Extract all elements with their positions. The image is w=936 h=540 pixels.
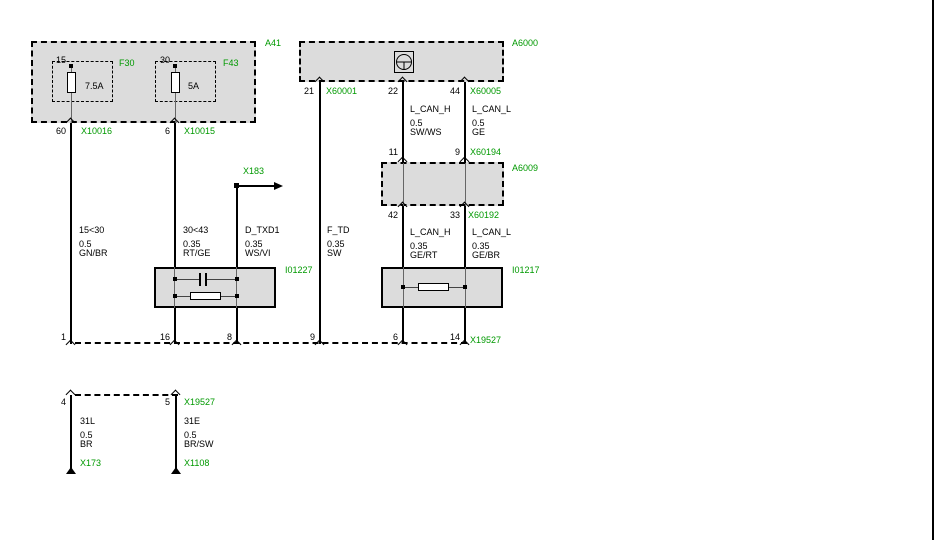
wire-name: F_TD xyxy=(327,226,350,235)
wire-label-kl30: 30<43 0.35 RT/GE xyxy=(183,226,210,258)
fuse-label-f43[interactable]: F43 xyxy=(223,58,239,68)
capacitor-icon xyxy=(199,273,201,286)
connector-label-x60192[interactable]: X60192 xyxy=(468,210,499,220)
connector-pin-6: 6 xyxy=(374,332,398,342)
component-label-i01227[interactable]: I01227 xyxy=(285,265,313,275)
wire-thin-through xyxy=(465,162,466,206)
wire-label-lcanl-lower: L_CAN_L 0.35 GE/BR xyxy=(472,228,511,260)
junction-dot xyxy=(463,285,467,289)
connector-pin-6: 6 xyxy=(146,126,170,136)
connector-pin-33: 33 xyxy=(436,210,460,220)
connector-label-x10015[interactable]: X10015 xyxy=(184,126,215,136)
wire-thin-through xyxy=(236,267,237,308)
connector-line-x19527 xyxy=(75,342,467,344)
component-label-a41[interactable]: A41 xyxy=(265,38,281,48)
wire-kl31e xyxy=(175,395,177,469)
branch-arrow-line xyxy=(238,185,275,187)
wire-color: RT/GE xyxy=(183,249,210,258)
fuse-rating-f43: 5A xyxy=(188,81,199,91)
wire-name: D_TXD1 xyxy=(245,226,280,235)
wire-kl15 xyxy=(70,123,72,344)
connector-pin-42: 42 xyxy=(374,210,398,220)
wire-color: GE/RT xyxy=(410,251,451,260)
ground-label-x173[interactable]: X173 xyxy=(80,458,101,468)
wire-color: GE/BR xyxy=(472,251,511,260)
wiring-diagram-canvas: A41 F30 15 7.5A F43 30 5A 60 X10016 6 X1… xyxy=(0,0,936,540)
component-label-a6009[interactable]: A6009 xyxy=(512,163,538,173)
capacitor-lead xyxy=(207,279,237,280)
connector-label-x19527-main[interactable]: X19527 xyxy=(470,335,501,345)
connector-pin-44: 44 xyxy=(436,86,460,96)
connector-chevron-icon xyxy=(66,340,76,350)
wire-label-kl15: 15<30 0.5 GN/BR xyxy=(79,226,108,258)
wire-dtxd1-upper xyxy=(236,186,238,267)
connector-pin-22: 22 xyxy=(374,86,398,96)
wire-label-dtxd1: D_TXD1 0.35 WS/VI xyxy=(245,226,280,258)
wire-name: L_CAN_L xyxy=(472,228,511,237)
connector-label-x19527-lower[interactable]: X19527 xyxy=(184,397,215,407)
fuse-box-f30 xyxy=(52,61,113,102)
fuse-symbol-f30 xyxy=(67,72,76,93)
connector-pin-8: 8 xyxy=(208,332,232,342)
wire-lcanl-seg2 xyxy=(464,206,466,267)
ground-icon xyxy=(171,467,181,474)
connector-pin-1: 1 xyxy=(42,332,66,342)
junction-dot xyxy=(401,285,405,289)
wire-label-lcanh-lower: L_CAN_H 0.35 GE/RT xyxy=(410,228,451,260)
fuse-rating-f30: 7.5A xyxy=(85,81,104,91)
connector-pin-5: 5 xyxy=(146,397,170,407)
connector-pin-9: 9 xyxy=(291,332,315,342)
connector-pin-21: 21 xyxy=(290,86,314,96)
wire-name: 30<43 xyxy=(183,226,210,235)
wire-thin-through xyxy=(403,162,404,206)
page-frame-edge xyxy=(932,0,934,540)
connector-label-x183[interactable]: X183 xyxy=(243,166,264,176)
connector-pin-60: 60 xyxy=(42,126,66,136)
ground-label-x1108[interactable]: X1108 xyxy=(184,458,209,468)
connector-pin-9: 9 xyxy=(436,147,460,157)
wire-color: GE xyxy=(472,128,511,137)
wire-thin-through xyxy=(174,267,175,308)
ground-icon xyxy=(66,467,76,474)
component-box-i01227 xyxy=(154,267,276,308)
connector-line-x19527-lower xyxy=(75,394,178,396)
wire-label-lcanh-upper: L_CAN_H 0.5 SW/WS xyxy=(410,105,451,137)
junction-dot xyxy=(173,294,177,298)
connector-pin-14: 14 xyxy=(436,332,460,342)
wire-color: SW xyxy=(327,249,350,258)
component-label-a6000[interactable]: A6000 xyxy=(512,38,538,48)
connector-label-x10016[interactable]: X10016 xyxy=(81,126,112,136)
connector-pin-11: 11 xyxy=(374,147,398,157)
fuse-pin-15: 15 xyxy=(42,55,66,65)
connector-pin-16: 16 xyxy=(146,332,170,342)
wire-kl30-upper xyxy=(174,123,176,267)
wire-color: BR/SW xyxy=(184,440,214,449)
component-label-i01217[interactable]: I01217 xyxy=(512,265,540,275)
wire-label-kl31e: 31E 0.5 BR/SW xyxy=(184,417,214,449)
wire-name: 31E xyxy=(184,417,214,426)
connector-label-x60001[interactable]: X60001 xyxy=(326,86,357,96)
resistor-icon xyxy=(190,292,221,300)
wire-ftd xyxy=(319,82,321,344)
wire-name: 31L xyxy=(80,417,95,426)
steering-wheel-icon xyxy=(394,51,414,73)
wire-name: L_CAN_L xyxy=(472,105,511,114)
fuse-box-f43 xyxy=(155,61,216,102)
wire-lcanh-seg2 xyxy=(402,206,404,267)
resistor-icon xyxy=(418,283,449,291)
fuse-pin-30: 30 xyxy=(146,55,170,65)
wire-kl31l xyxy=(70,395,72,469)
connector-label-x60194[interactable]: X60194 xyxy=(470,147,501,157)
junction-dot xyxy=(173,277,177,281)
connector-label-x60005[interactable]: X60005 xyxy=(470,86,501,96)
capacitor-lead xyxy=(175,279,199,280)
branch-arrow-icon xyxy=(274,182,283,190)
wire-name: L_CAN_H xyxy=(410,228,451,237)
wire-label-ftd: F_TD 0.35 SW xyxy=(327,226,350,258)
component-box-a6009 xyxy=(381,162,504,206)
wire-label-kl31l: 31L 0.5 BR xyxy=(80,417,95,449)
connector-chevron-icon xyxy=(460,340,470,350)
wire-lcanh-seg1 xyxy=(402,82,404,163)
wire-color: GN/BR xyxy=(79,249,108,258)
wire-color: WS/VI xyxy=(245,249,280,258)
junction-dot xyxy=(235,294,239,298)
wire-lcanl-seg1 xyxy=(464,82,466,163)
fuse-label-f30[interactable]: F30 xyxy=(119,58,135,68)
connector-pin-4: 4 xyxy=(42,397,66,407)
wire-color: BR xyxy=(80,440,95,449)
wire-label-lcanl-upper: L_CAN_L 0.5 GE xyxy=(472,105,511,137)
fuse-symbol-f43 xyxy=(171,72,180,93)
wire-color: SW/WS xyxy=(410,128,451,137)
wire-name: 15<30 xyxy=(79,226,108,235)
junction-dot xyxy=(235,277,239,281)
wire-name: L_CAN_H xyxy=(410,105,451,114)
